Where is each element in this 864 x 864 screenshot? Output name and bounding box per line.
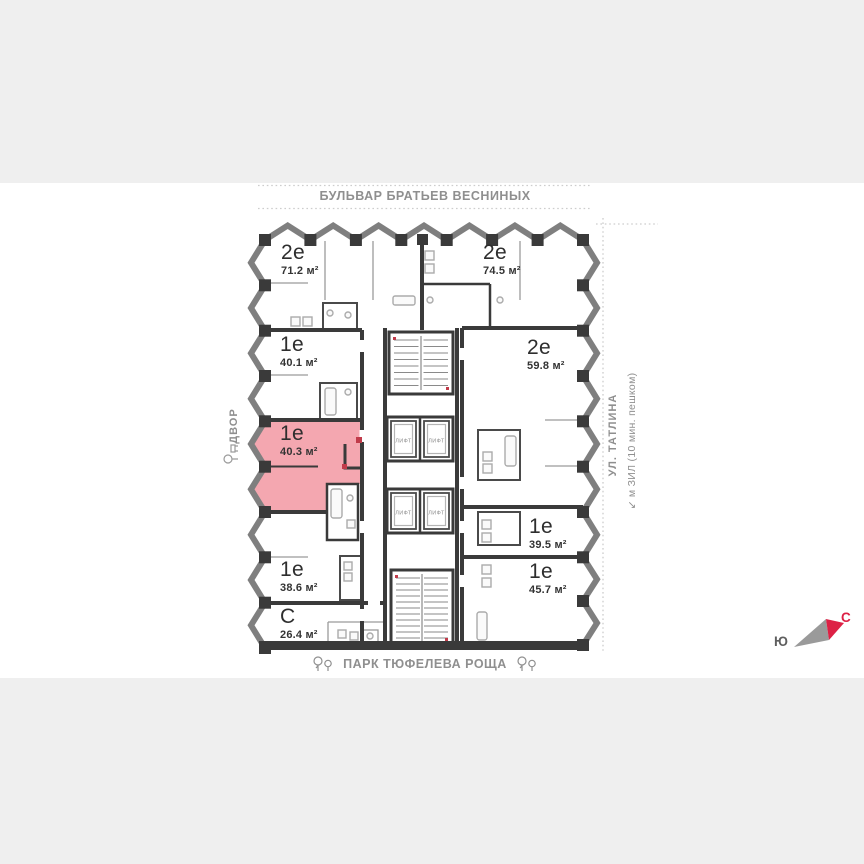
- elevator-label: ЛИФТ: [395, 511, 412, 517]
- apartment-label: 1е 45.7 м²: [529, 561, 567, 596]
- elevator-label: ЛИФТ: [428, 511, 445, 517]
- staircase-bottom: [391, 570, 453, 643]
- compass-south-label: Ю: [774, 634, 788, 649]
- elevator-label: ЛИФТ: [395, 439, 412, 445]
- trees-icon: [516, 656, 538, 672]
- compass-needle-icon: [794, 619, 844, 647]
- elevator-label: ЛИФТ: [428, 439, 445, 445]
- apartment-label: 1е 40.1 м²: [280, 334, 318, 369]
- top-street-label: БУЛЬВАР БРАТЬЕВ ВЕСНИНЫХ: [258, 189, 592, 203]
- apartment-label: С 26.4 м²: [280, 606, 318, 641]
- floorplan-page: { "colors": { "page_bg": "#efefef", "pla…: [0, 0, 864, 864]
- highlighted-apartment-label: 1е 40.3 м²: [280, 423, 318, 458]
- apartment-label: 2е 59.8 м²: [527, 337, 565, 372]
- right-street-label: УЛ. ТАТЛИНА: [607, 390, 619, 480]
- bottom-park-label: ПАРК ТЮФЕЛЕВА РОЩА: [343, 657, 507, 671]
- highlight-bathroom: [327, 484, 358, 540]
- elevator-block-bottom: ЛИФТ ЛИФТ: [387, 489, 453, 533]
- floor-plan-canvas: ЛИФТ ЛИФТ ЛИФТ ЛИФТ: [0, 0, 864, 864]
- apartment-label: 2е 74.5 м²: [483, 242, 521, 277]
- bottom-park-label-group: ПАРК ТЮФЕЛЕВА РОЩА: [258, 656, 592, 672]
- apartment-label: 1е 38.6 м²: [280, 559, 318, 594]
- courtyard-icon: [222, 442, 242, 466]
- metro-note-label: ↙ м ЗИЛ (10 мин. пешком): [626, 361, 638, 521]
- apartment-label: 1е 39.5 м²: [529, 516, 567, 551]
- compass-north-label: С: [841, 610, 851, 625]
- apartment-label: 2е 71.2 м²: [281, 242, 319, 277]
- elevator-block-top: ЛИФТ ЛИФТ: [387, 417, 453, 461]
- staircase-top: [389, 332, 453, 394]
- trees-icon: [312, 656, 334, 672]
